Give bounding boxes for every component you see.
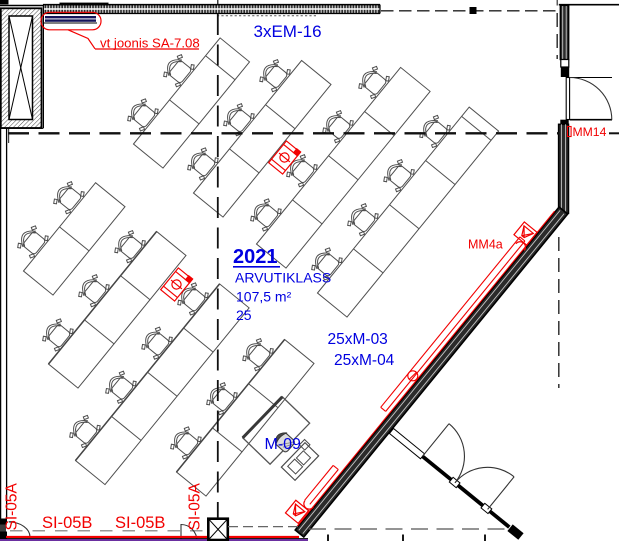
svg-text:107,5 m²: 107,5 m² bbox=[236, 289, 292, 305]
svg-text:3xEM-16: 3xEM-16 bbox=[254, 22, 322, 41]
svg-text:vt joonis SA-7.08: vt joonis SA-7.08 bbox=[100, 36, 200, 51]
svg-text:SI-05A: SI-05A bbox=[187, 482, 204, 530]
svg-text:MM14: MM14 bbox=[573, 125, 607, 139]
svg-text:M-09: M-09 bbox=[265, 436, 302, 453]
svg-text:SI-05B: SI-05B bbox=[42, 514, 92, 532]
svg-text:ARVUTIKLASS: ARVUTIKLASS bbox=[235, 270, 331, 286]
svg-text:25: 25 bbox=[236, 307, 252, 323]
svg-text:SI-05A: SI-05A bbox=[4, 482, 21, 530]
svg-text:MM4a: MM4a bbox=[468, 238, 503, 252]
svg-text:25xM-04: 25xM-04 bbox=[334, 352, 395, 369]
svg-text:25xM-03: 25xM-03 bbox=[328, 331, 388, 348]
svg-text:2021: 2021 bbox=[233, 246, 278, 268]
svg-text:SI-05B: SI-05B bbox=[115, 514, 165, 532]
